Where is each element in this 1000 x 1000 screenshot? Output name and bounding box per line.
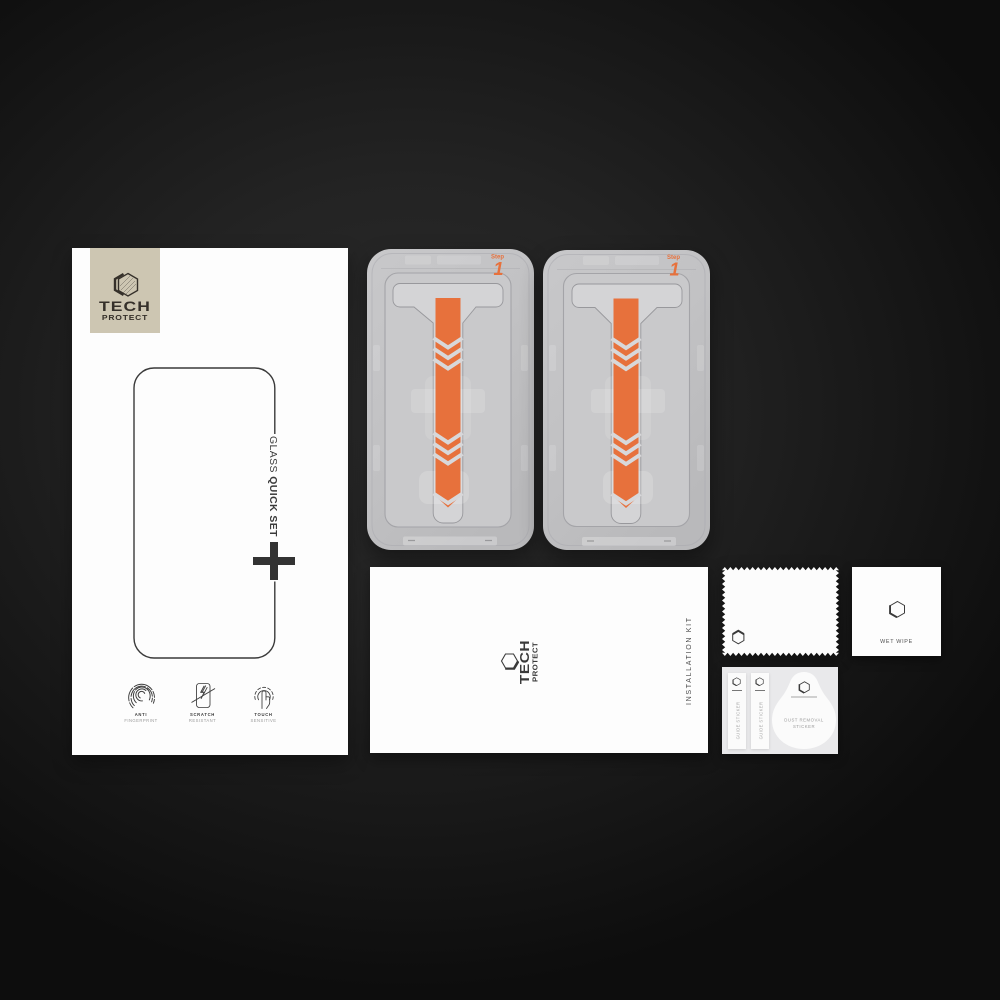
svg-text:1: 1 xyxy=(669,259,679,279)
svg-text:STICKER: STICKER xyxy=(793,724,815,729)
svg-text:DUST REMOVAL: DUST REMOVAL xyxy=(784,718,824,723)
svg-text:1: 1 xyxy=(493,259,503,279)
